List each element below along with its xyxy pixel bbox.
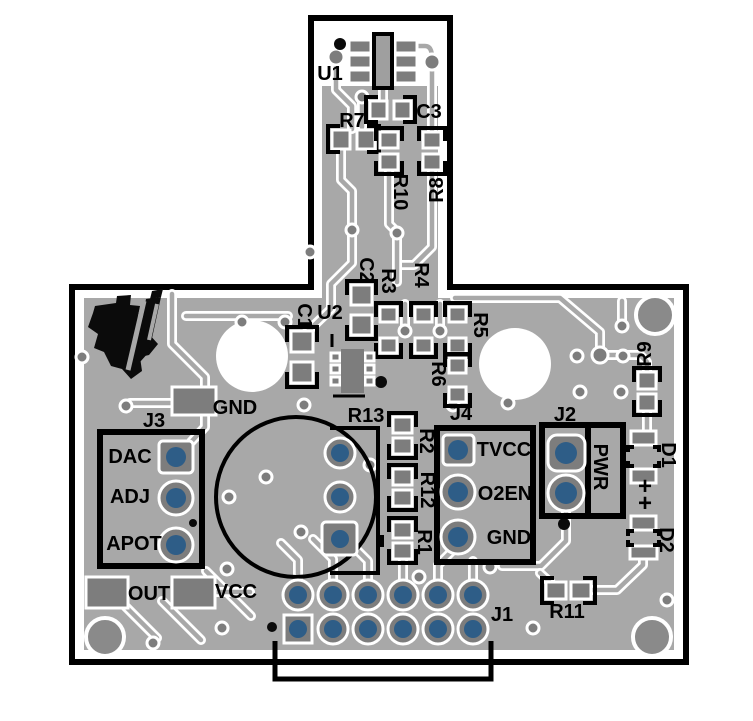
silkscreen-label-vcc: VCC [215, 582, 257, 602]
silkscreen-label-r2: R2 [416, 428, 436, 454]
pcb-layout-image: U1R7C3R10R8C2R3R4C1U2R5R6GNDJ3DACADJAPOT… [0, 0, 753, 721]
silkscreen-label-r5: R5 [470, 312, 490, 338]
silkscreen-label-j3: J3 [143, 411, 165, 431]
silkscreen-label-o2en: O2EN [478, 484, 532, 504]
silkscreen-label-c3: C3 [416, 102, 442, 122]
silkscreen-label-j2: J2 [554, 405, 576, 425]
silkscreen-label-gnd1: GND [213, 398, 257, 418]
silkscreen-label-r6: R6 [428, 361, 448, 387]
silkscreen-label-c1: C1 [294, 303, 314, 329]
silkscreen-label-r3: R3 [378, 268, 398, 294]
silkscreen-label-r4: R4 [411, 262, 431, 288]
silkscreen-label-r10: R10 [390, 174, 410, 211]
silkscreen-label-r13: R13 [348, 406, 385, 426]
silkscreen-label-r8: R8 [427, 177, 447, 203]
silkscreen-label-r11: R11 [549, 602, 585, 622]
silkscreen-labels: U1R7C3R10R8C2R3R4C1U2R5R6GNDJ3DACADJAPOT… [0, 0, 753, 721]
silkscreen-label-c2: C2 [356, 257, 376, 283]
silkscreen-label-dac: DAC [108, 447, 151, 467]
silkscreen-label-plus2: + [638, 492, 652, 516]
silkscreen-label-u2: U2 [317, 303, 343, 323]
silkscreen-label-r7: R7 [339, 111, 365, 131]
silkscreen-label-d2: D2 [656, 527, 676, 553]
silkscreen-label-j4: J4 [450, 404, 472, 424]
silkscreen-label-out: OUT [128, 584, 170, 604]
silkscreen-label-apot: APOT [106, 534, 162, 554]
silkscreen-label-adj: ADJ [110, 487, 150, 507]
silkscreen-label-pwr: PWR [590, 444, 610, 491]
silkscreen-label-r12: R12 [417, 472, 437, 509]
silkscreen-label-u1: U1 [317, 64, 343, 84]
silkscreen-label-r1: R1 [414, 529, 434, 555]
silkscreen-label-tvcc: TVCC [477, 440, 531, 460]
silkscreen-label-r9: R9 [635, 341, 655, 367]
silkscreen-label-d1: D1 [658, 442, 678, 468]
silkscreen-label-j1: J1 [491, 605, 513, 625]
silkscreen-label-gnd2: GND [487, 528, 531, 548]
